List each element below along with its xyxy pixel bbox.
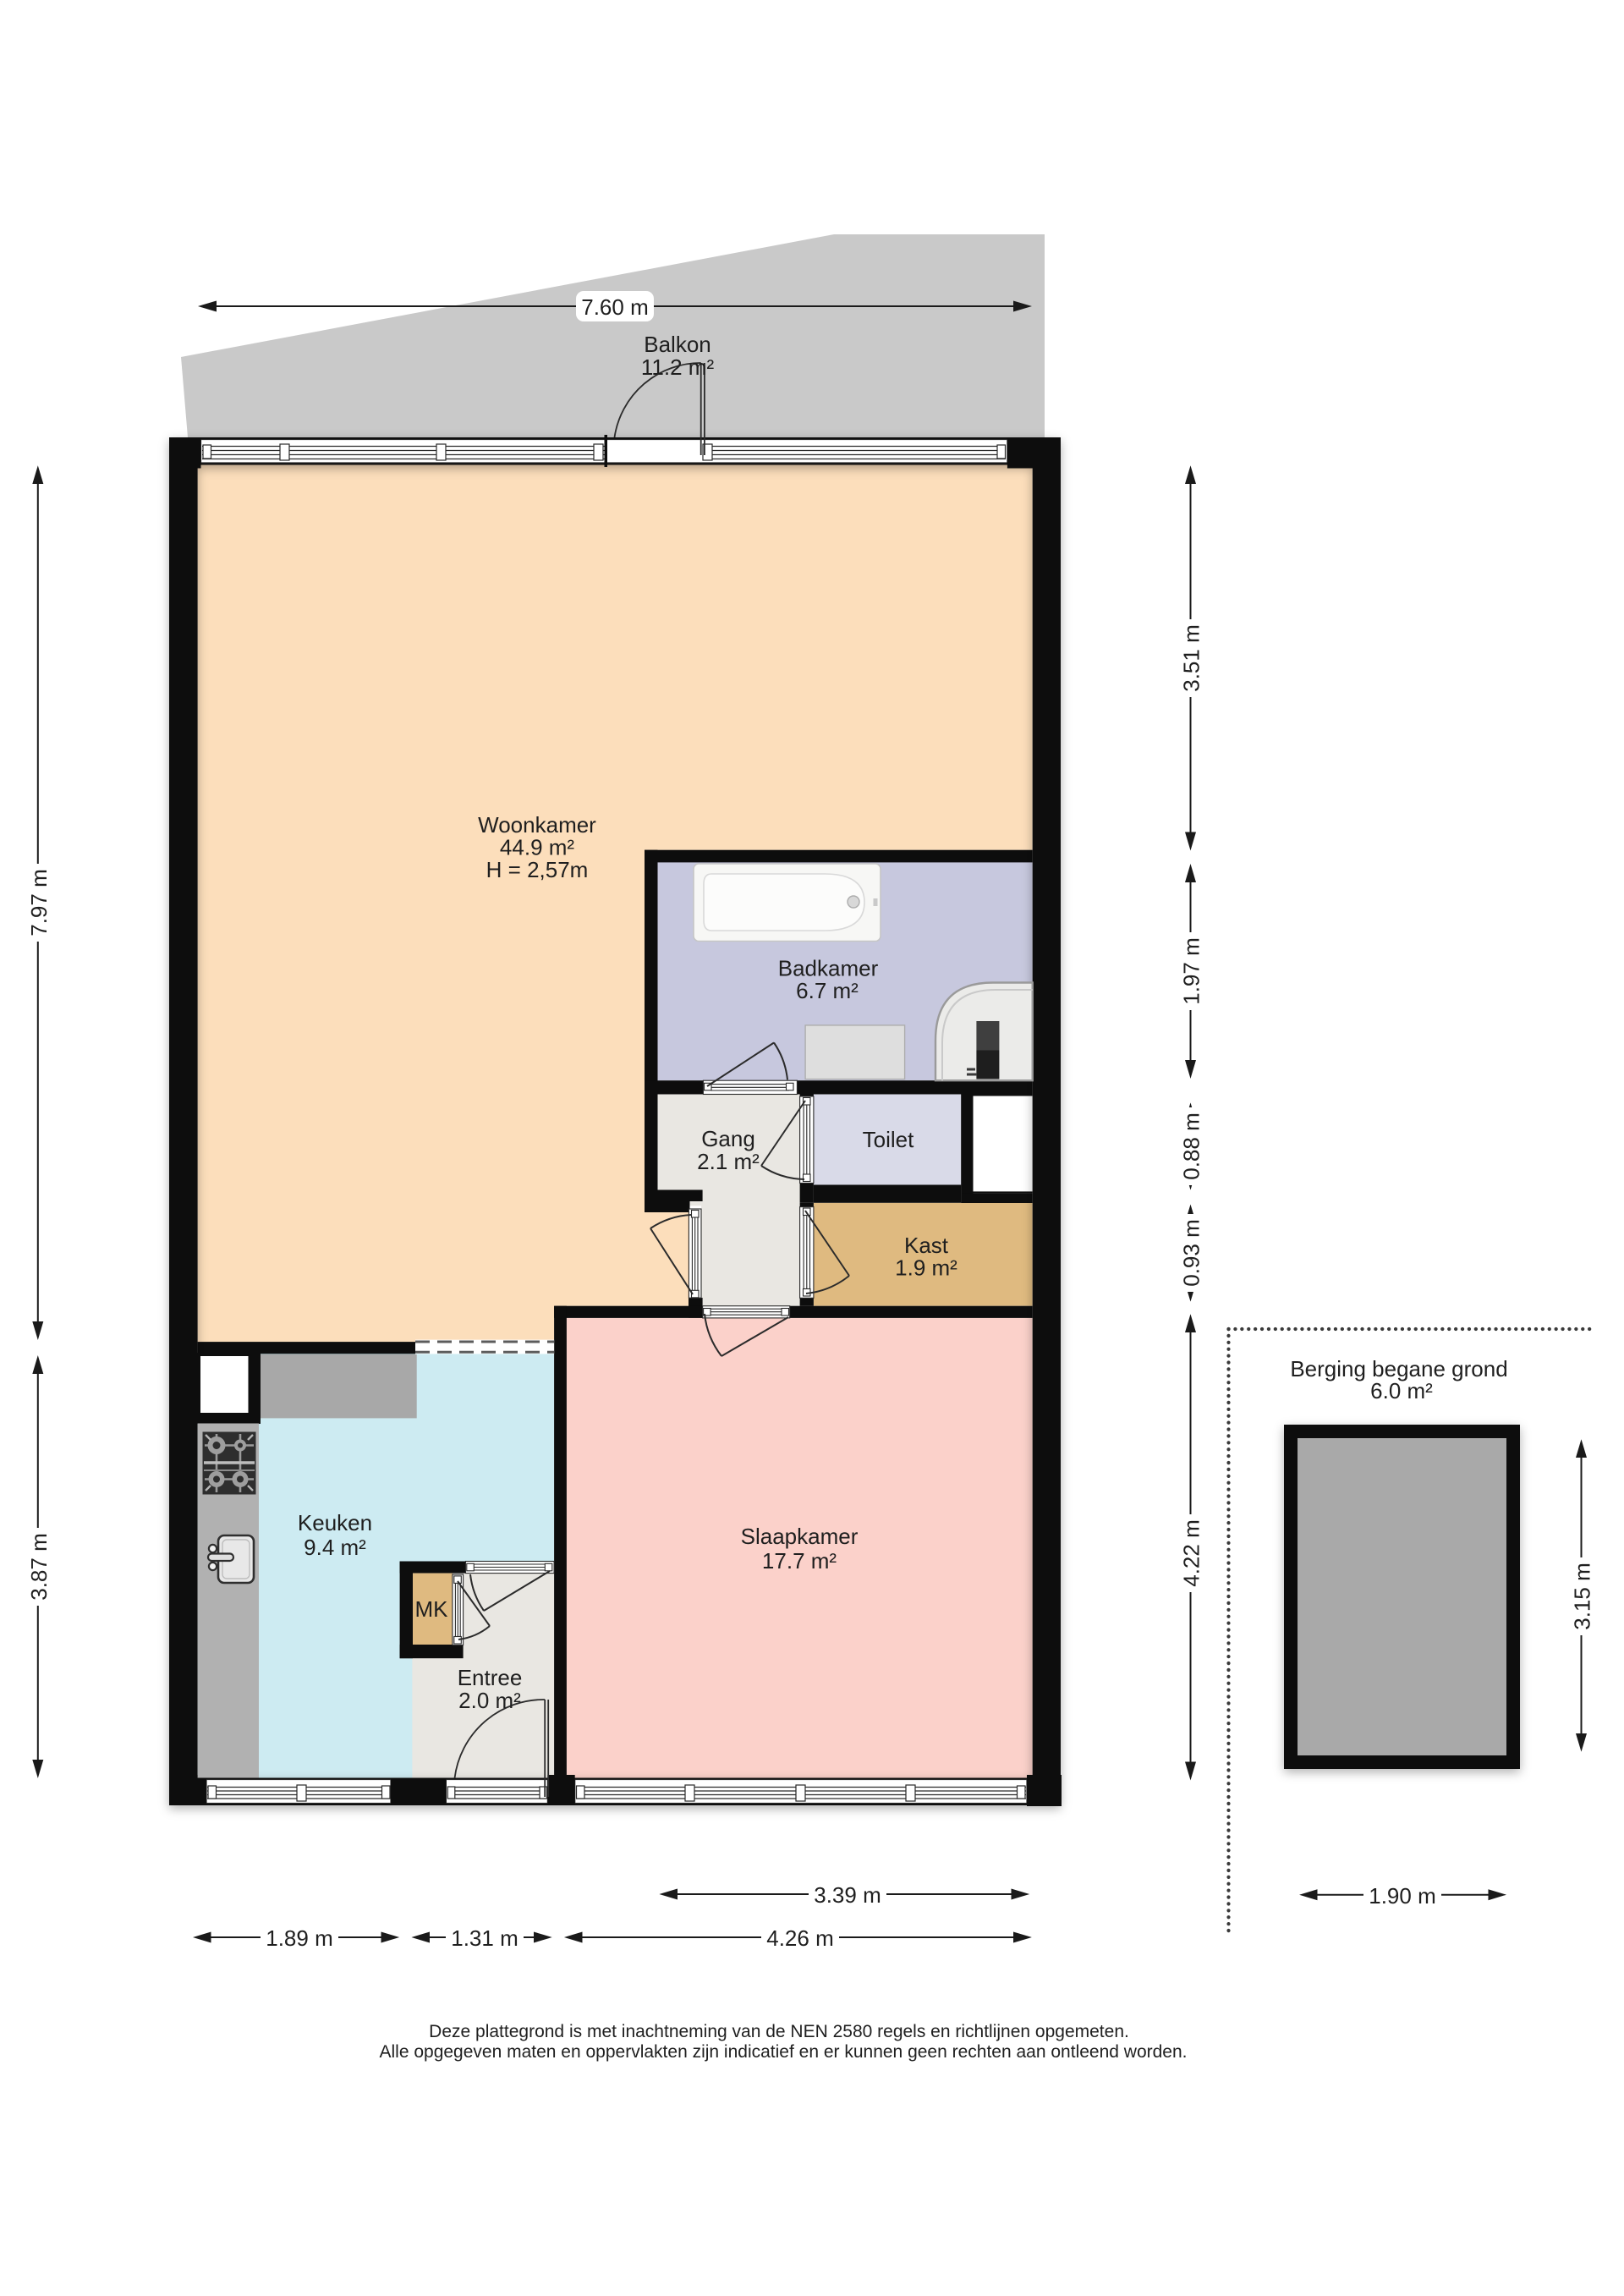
svg-text:3.39 m: 3.39 m — [814, 1882, 881, 1908]
svg-text:Toilet: Toilet — [863, 1127, 914, 1152]
svg-text:3.51 m: 3.51 m — [1179, 624, 1204, 692]
svg-text:H = 2,57m: H = 2,57m — [486, 857, 589, 882]
svg-text:0.93 m: 0.93 m — [1179, 1219, 1204, 1287]
svg-text:6.7 m²: 6.7 m² — [796, 978, 859, 1003]
svg-text:Deze plattegrond is met inacht: Deze plattegrond is met inachtneming van… — [429, 2022, 1129, 2041]
svg-text:11.2 m²: 11.2 m² — [641, 354, 715, 380]
svg-text:Keuken: Keuken — [298, 1510, 372, 1535]
svg-text:7.97 m: 7.97 m — [26, 869, 52, 937]
svg-text:1.89 m: 1.89 m — [266, 1925, 333, 1951]
svg-text:3.87 m: 3.87 m — [26, 1533, 52, 1601]
svg-text:0.88 m: 0.88 m — [1179, 1112, 1204, 1180]
svg-text:1.97 m: 1.97 m — [1179, 937, 1204, 1005]
svg-text:2.0 m²: 2.0 m² — [458, 1688, 521, 1713]
svg-text:Badkamer: Badkamer — [778, 956, 879, 981]
svg-text:6.0 m²: 6.0 m² — [1370, 1378, 1433, 1403]
svg-text:Gang: Gang — [701, 1126, 755, 1151]
svg-text:Slaapkamer: Slaapkamer — [741, 1524, 859, 1549]
svg-text:Woonkamer: Woonkamer — [478, 812, 596, 838]
svg-text:4.22 m: 4.22 m — [1179, 1519, 1204, 1587]
svg-text:Entree: Entree — [458, 1665, 523, 1690]
svg-text:1.90 m: 1.90 m — [1369, 1883, 1436, 1909]
svg-text:Balkon: Balkon — [644, 332, 711, 357]
svg-text:7.60 m: 7.60 m — [581, 294, 649, 320]
svg-text:Alle opgegeven maten en opperv: Alle opgegeven maten en oppervlakten zij… — [379, 2042, 1187, 2062]
svg-text:4.26 m: 4.26 m — [766, 1925, 834, 1951]
svg-text:2.1 m²: 2.1 m² — [697, 1149, 760, 1174]
svg-text:44.9 m²: 44.9 m² — [500, 835, 574, 860]
svg-text:1.9 m²: 1.9 m² — [895, 1255, 957, 1281]
svg-text:Kast: Kast — [904, 1233, 949, 1258]
svg-text:1.31 m: 1.31 m — [451, 1925, 518, 1951]
svg-text:MK: MK — [415, 1596, 449, 1622]
svg-text:17.7 m²: 17.7 m² — [762, 1548, 837, 1574]
svg-text:9.4 m²: 9.4 m² — [304, 1535, 366, 1560]
svg-text:3.15 m: 3.15 m — [1570, 1563, 1595, 1630]
